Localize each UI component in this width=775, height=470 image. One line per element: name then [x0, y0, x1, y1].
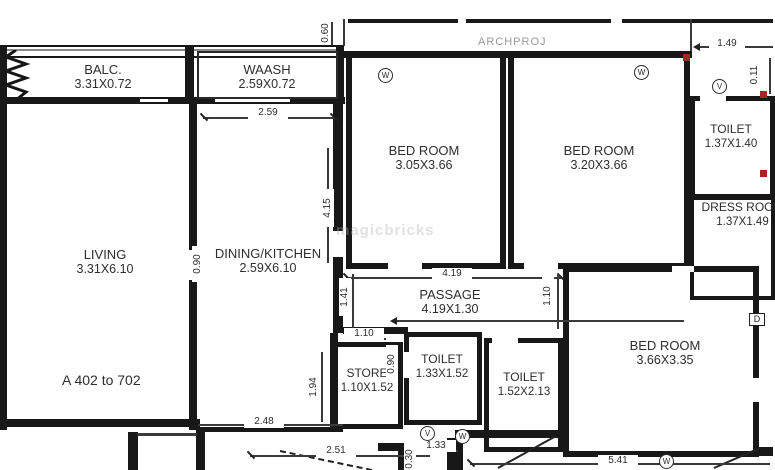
room-label-toilet-c: TOILET 1.33X1.52: [402, 352, 482, 382]
dim-line: [392, 320, 684, 322]
room-dims: 4.19X1.30: [388, 302, 512, 317]
room-name: WAASH: [207, 62, 327, 77]
room-dims: 2.59X6.10: [190, 261, 346, 276]
room-label-bedroom1: BED ROOM 3.05X3.66: [364, 143, 484, 173]
unit-number-label: A 402 to 702: [62, 372, 141, 388]
wall-dining-right-upper: [333, 101, 343, 231]
room-dims: 3.31X6.10: [45, 262, 165, 277]
room-dims: 3.31X0.72: [43, 77, 163, 92]
dim-extension-line: [343, 19, 345, 46]
dim-line: [352, 274, 354, 329]
room-name: BED ROOM: [539, 143, 659, 158]
door-opening: [672, 266, 694, 272]
top-dim-dash: [348, 19, 458, 23]
window-slot: [215, 99, 290, 102]
wall-living-dining-upper: [189, 100, 197, 250]
wall-fragment: [455, 430, 562, 438]
room-label-bedroom2: BED ROOM 3.20X3.66: [539, 143, 659, 173]
red-corner-marker: [683, 54, 690, 61]
room-name: TOILET: [402, 352, 482, 367]
room-dims: 1.33X1.52: [402, 367, 482, 382]
door-tag: D: [749, 313, 765, 326]
door-opening: [388, 263, 422, 269]
wall-living-dining-lower: [189, 280, 197, 430]
room-label-waash: WAASH 2.59X0.72: [207, 62, 327, 92]
room-label-bedroom3: BED ROOM 3.66X3.35: [605, 338, 725, 368]
room-name: BED ROOM: [364, 143, 484, 158]
dim-arrow: [386, 317, 397, 325]
dim-text: 5.41: [598, 455, 638, 467]
floor-plan: ARCHPROJ 1.49 0.60 0.11 0.90: [0, 0, 775, 470]
dim-line: [321, 352, 323, 422]
drawing-header: ARCHPROJ: [478, 36, 547, 48]
room-dims: 3.66X3.35: [605, 353, 725, 368]
dim-text: 0.11: [749, 59, 761, 91]
red-corner-marker: [760, 170, 767, 177]
window-slot: [140, 99, 168, 102]
door-opening: [492, 338, 518, 343]
dim-text: 2.59: [248, 107, 288, 119]
window-symbol: W: [659, 454, 674, 469]
dim-text: 2.51: [316, 445, 356, 457]
vent-symbol: V: [420, 426, 435, 441]
dim-text: 1.10: [344, 328, 384, 340]
room-label-passage: PASSAGE 4.19X1.30: [388, 287, 512, 317]
wall-balc-waash-divider: [185, 45, 194, 104]
door-opening: [700, 96, 726, 101]
vent-symbol: V: [712, 79, 727, 94]
room-label-toilet-r: TOILET 1.52X2.13: [484, 370, 564, 400]
dim-text: 1.94: [308, 368, 320, 406]
room-dims: 2.59X0.72: [207, 77, 327, 92]
dim-line: [769, 58, 771, 94]
room-name: LIVING: [45, 247, 165, 262]
room-name: BED ROOM: [605, 338, 725, 353]
room-dims: 3.05X3.66: [364, 158, 484, 173]
wall-break-symbol: [2, 50, 32, 102]
room-name: BALC.: [43, 62, 163, 77]
room-name: TOILET: [690, 122, 772, 137]
dim-text: 2.48: [244, 416, 284, 428]
window-symbol: W: [455, 429, 470, 444]
room-name: TOILET: [484, 370, 564, 385]
room-dims: 1.10X1.52: [332, 381, 402, 396]
room-dims: 1.37X1.40: [690, 137, 772, 152]
room-label-dressroom: DRESS ROOM 1.37X1.49: [680, 200, 775, 230]
top-dim-dash: [622, 19, 773, 23]
dim-text: 1.33: [416, 440, 456, 452]
watermark: magicbricks: [336, 222, 435, 239]
room-dims: 3.20X3.66: [539, 158, 659, 173]
door-opening: [524, 263, 558, 269]
red-corner-marker: [760, 91, 767, 98]
top-dim-dash: [466, 19, 611, 23]
room-dims: 1.52X2.13: [484, 385, 564, 400]
dim-text: 1.10: [542, 277, 554, 315]
room-name: DRESS ROOM: [680, 200, 775, 215]
room-dims: 1.37X1.49: [680, 215, 775, 230]
wall-fragment: [196, 432, 205, 470]
room-label-toilet-tr: TOILET 1.37X1.40: [690, 122, 772, 152]
dim-arrow: [689, 43, 700, 51]
window-symbol: W: [378, 68, 393, 83]
wall-fragment: [128, 432, 138, 470]
window-symbol: W: [634, 65, 649, 80]
dim-text: 1.49: [709, 38, 745, 50]
room-name: PASSAGE: [388, 287, 512, 302]
room-label-living: LIVING 3.31X6.10: [45, 247, 165, 277]
dim-text: 4.15: [322, 189, 334, 227]
door-opening: [753, 378, 759, 402]
room-label-balcony: BALC. 3.31X0.72: [43, 62, 163, 92]
wall-living-bottom: [0, 419, 200, 427]
wall-fragment-thin: [137, 433, 197, 436]
dim-text: 1.41: [339, 278, 351, 316]
dim-text: 0.30: [404, 440, 416, 470]
room-label-dining-kitchen: DINING/KITCHEN 2.59X6.10: [190, 246, 346, 276]
dim-text: 4.19: [432, 268, 472, 280]
room-name: DINING/KITCHEN: [190, 246, 346, 261]
dim-text: 0.90: [386, 345, 398, 383]
